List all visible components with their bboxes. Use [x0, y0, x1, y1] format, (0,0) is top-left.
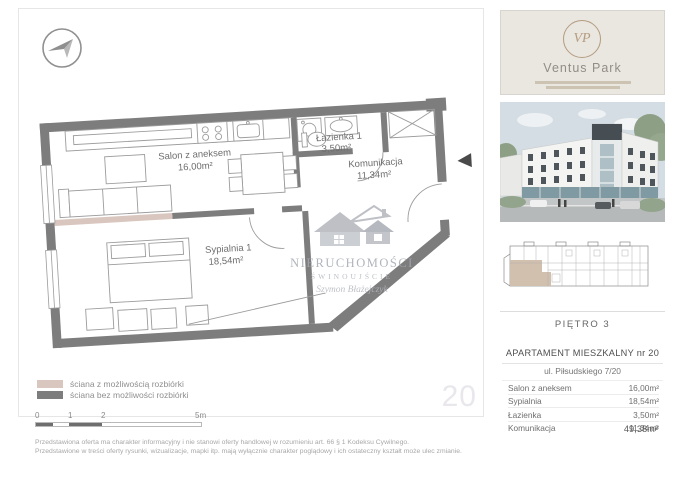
room-area-komunikacja: 11,34m²: [357, 169, 392, 182]
compass-icon: [39, 25, 85, 71]
legend-swatch-dark: [37, 391, 63, 399]
disclaimer-line-2: Przedstawione w treści oferty rysunki, w…: [35, 447, 485, 456]
divider: [500, 311, 665, 312]
logo-address-line: [546, 86, 620, 89]
area-row-value: 16,00m²: [629, 383, 659, 393]
highlighted-unit: [510, 260, 542, 286]
legend-label: ściana z możliwością rozbiórki: [70, 379, 184, 389]
room-area-sypialnia: 18,54m²: [208, 255, 243, 268]
scale-tick: 5m: [195, 411, 206, 420]
brand-monogram: VP: [563, 20, 601, 58]
floor-overview-plan: [500, 230, 665, 306]
scale-tick: 2: [101, 411, 105, 420]
apartment-address: ul. Piłsudskiego 7/20: [502, 366, 663, 381]
room-area-lazienka: 3,50m²: [321, 142, 351, 155]
floorplan-sheet: Salon z aneksem 16,00m² Łazienka 1 3,50m…: [18, 8, 484, 417]
logo-address-line: [535, 81, 631, 84]
entrance-arrow-icon: [457, 153, 472, 168]
area-row: Łazienka 3,50m²: [508, 408, 659, 422]
legend-item-solid: ściana bez możliwości rozbiórki: [37, 389, 189, 400]
brochure-page: Salon z aneksem 16,00m² Łazienka 1 3,50m…: [0, 0, 679, 480]
scale-tick: 0: [35, 411, 39, 420]
area-row-name: Salon z aneksem: [508, 383, 572, 393]
building-render-image: [500, 102, 665, 222]
apartment-number-badge: 20: [442, 380, 477, 414]
apartment-title: APARTAMENT MIESZKALNY nr 20: [502, 348, 663, 364]
room-label-komunikacja: Komunikacja: [348, 156, 404, 170]
legend-item-demolishable: ściana z możliwością rozbiórki: [37, 378, 189, 389]
disclaimer: Przedstawiona oferta ma charakter inform…: [35, 438, 485, 456]
sidebar: VP Ventus Park: [500, 0, 665, 480]
area-row-value: 3,50m²: [633, 410, 659, 420]
brand-name: Ventus Park: [501, 61, 664, 75]
scale-tick: 1: [68, 411, 72, 420]
floor-label: PIĘTRO 3: [500, 319, 665, 330]
legend-label: ściana bez możliwości rozbiórki: [70, 390, 189, 400]
room-area-salon: 16,00m²: [178, 160, 213, 173]
legend-swatch-beige: [37, 380, 63, 388]
area-row-value: 18,54m²: [629, 396, 659, 406]
area-row-name: Komunikacja: [508, 423, 556, 433]
scale-rule: [35, 422, 202, 427]
wall-legend: ściana z możliwością rozbiórki ściana be…: [37, 378, 189, 400]
wardrobe: [388, 109, 435, 138]
room-label-salon: Salon z aneksem: [158, 147, 231, 162]
disclaimer-line-1: Przedstawiona oferta ma charakter inform…: [35, 438, 485, 447]
room-label-sypialnia: Sypialnia 1: [205, 242, 252, 256]
area-row-name: Łazienka: [508, 410, 541, 420]
area-row: Sypialnia 18,54m²: [508, 395, 659, 409]
area-row: Salon z aneksem 16,00m²: [508, 381, 659, 395]
brand-logo-card: VP Ventus Park: [500, 10, 665, 95]
total-area: 49,38m²: [624, 424, 658, 434]
apartment-floorplan: Salon z aneksem 16,00m² Łazienka 1 3,50m…: [31, 96, 481, 354]
area-row-name: Sypialnia: [508, 396, 542, 406]
